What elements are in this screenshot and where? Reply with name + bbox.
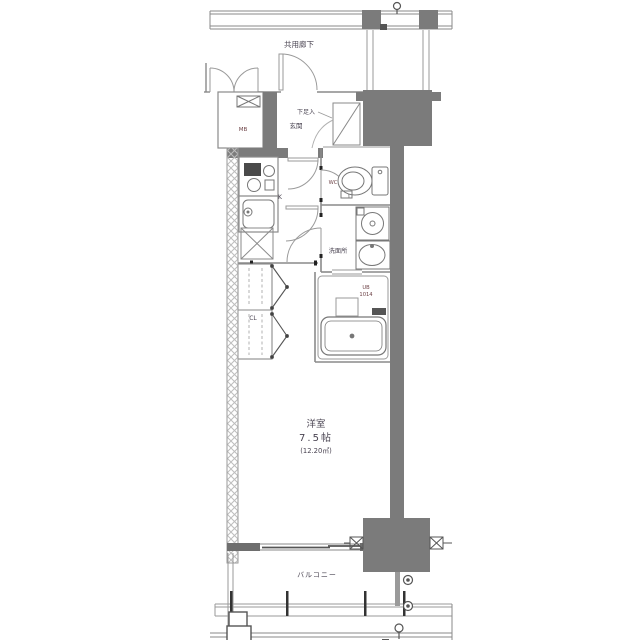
corridor-marker: [380, 24, 387, 30]
unit-bath: UB 1014: [315, 272, 390, 362]
door-jamb-cap: [314, 261, 317, 266]
door-jamb-cap: [320, 166, 323, 170]
main-room-size: 7.5帖: [299, 431, 333, 444]
structure-block-top: [356, 90, 441, 146]
exterior-wall-right: [390, 146, 404, 518]
corridor-pillar-left: [362, 10, 381, 29]
main-room-name: 洋室: [306, 418, 325, 430]
unit-bath-size: 1014: [359, 292, 373, 298]
floor-plan-drawing: 共用廊下 MB 下足入 玄関: [0, 0, 640, 640]
common-corridor-label: 共用廊下: [284, 39, 314, 49]
wall-entrance-vertical: [263, 92, 277, 150]
corridor-pillar-right: [419, 10, 438, 29]
main-room-area: (12.20㎡): [300, 446, 332, 455]
wc-label: WC: [329, 180, 338, 186]
door-jamb-cap: [320, 213, 323, 217]
meter-box: MB: [218, 92, 263, 148]
closet-box: [238, 264, 272, 359]
bottom-hatch-box: [227, 626, 251, 640]
unit-bath-label: UB: [362, 285, 370, 291]
meter-box-label: MB: [239, 127, 248, 133]
balcony-label: バルコニー: [297, 571, 337, 579]
shoe-cabinet-label: 下足入: [297, 109, 315, 116]
washroom-label: 洗面所: [329, 247, 348, 255]
floor-plan: 共用廊下 MB 下足入 玄関: [0, 0, 640, 640]
entrance-label: 玄関: [290, 121, 303, 130]
drain-stem: [395, 572, 400, 606]
door-jamb-cap: [320, 254, 323, 258]
closet-label: CL: [249, 315, 257, 322]
exterior-wall-left: [227, 148, 238, 563]
door-jamb-cap: [320, 198, 323, 202]
bath-faucet-icon: [372, 308, 386, 315]
